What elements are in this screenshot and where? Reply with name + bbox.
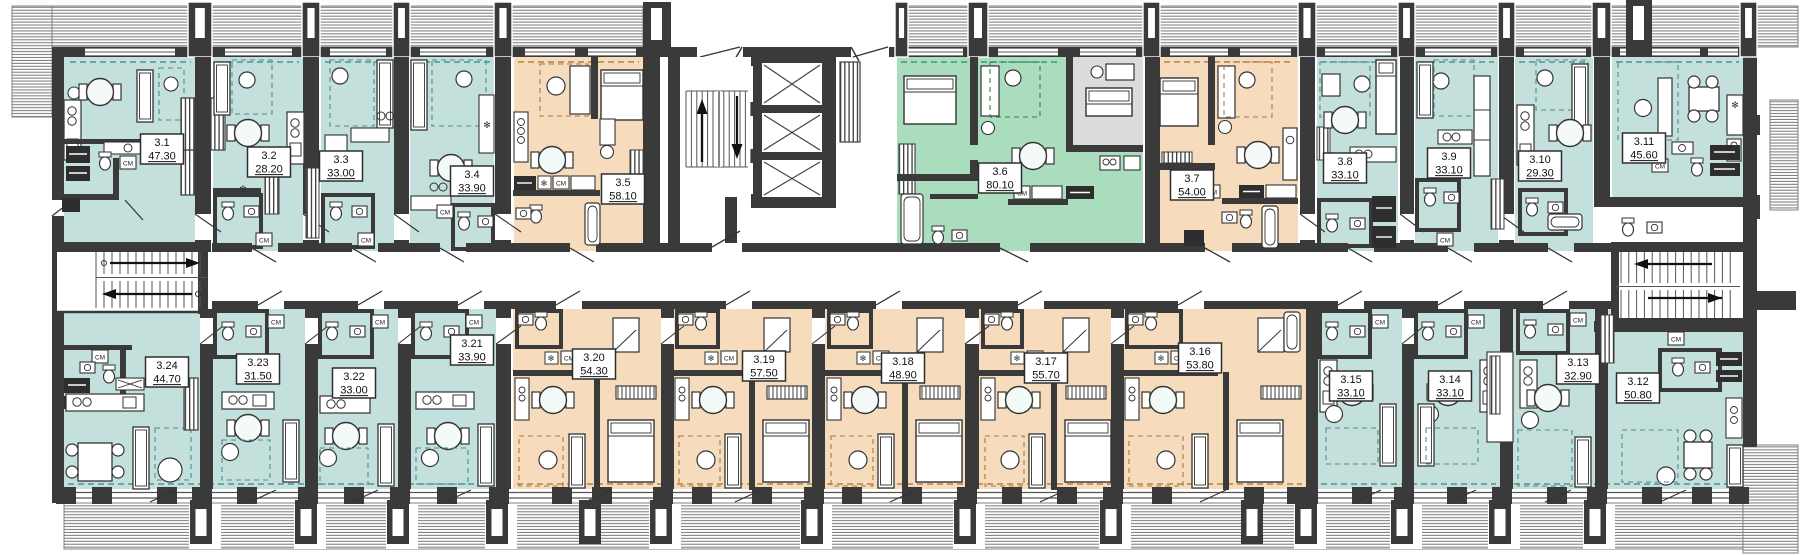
- svg-text:48.90: 48.90: [889, 370, 917, 382]
- svg-text:50.80: 50.80: [1624, 390, 1652, 402]
- svg-text:CM: CM: [95, 355, 105, 362]
- svg-text:CM: CM: [271, 320, 281, 327]
- svg-text:3.1: 3.1: [154, 137, 169, 149]
- svg-text:32.90: 32.90: [1564, 371, 1592, 383]
- svg-text:3.15: 3.15: [1340, 374, 1361, 386]
- svg-text:3.7: 3.7: [1184, 173, 1199, 185]
- svg-text:CM: CM: [1655, 164, 1665, 171]
- svg-text:54.00: 54.00: [1178, 187, 1206, 199]
- svg-text:✻: ✻: [860, 354, 867, 363]
- svg-text:33.10: 33.10: [1331, 170, 1359, 182]
- svg-text:3.6: 3.6: [992, 166, 1007, 178]
- svg-text:3.17: 3.17: [1035, 356, 1056, 368]
- svg-text:54.30: 54.30: [580, 366, 608, 378]
- svg-text:33.90: 33.90: [458, 183, 486, 195]
- svg-text:3.16: 3.16: [1189, 346, 1210, 358]
- svg-text:3.14: 3.14: [1439, 374, 1460, 386]
- svg-text:28.20: 28.20: [255, 164, 283, 176]
- svg-text:CM: CM: [724, 356, 734, 363]
- svg-text:3.4: 3.4: [464, 169, 479, 181]
- svg-text:44.70: 44.70: [153, 374, 181, 386]
- svg-text:33.90: 33.90: [458, 352, 486, 364]
- svg-text:33.00: 33.00: [327, 168, 355, 180]
- svg-text:3.22: 3.22: [343, 371, 364, 383]
- svg-text:45.60: 45.60: [1630, 150, 1658, 162]
- svg-text:CM: CM: [1440, 238, 1450, 245]
- svg-text:3.23: 3.23: [247, 357, 268, 369]
- svg-text:3.3: 3.3: [333, 154, 348, 166]
- svg-text:3.19: 3.19: [753, 354, 774, 366]
- svg-text:53.80: 53.80: [1186, 360, 1214, 372]
- svg-text:3.10: 3.10: [1529, 154, 1550, 166]
- svg-text:CM: CM: [469, 320, 479, 327]
- svg-text:CM: CM: [440, 210, 450, 217]
- svg-text:3.8: 3.8: [1337, 156, 1352, 168]
- svg-text:CM: CM: [123, 161, 133, 168]
- svg-text:CM: CM: [1375, 320, 1385, 327]
- svg-text:✻: ✻: [548, 354, 555, 363]
- svg-text:CM: CM: [556, 181, 566, 188]
- svg-text:✻: ✻: [1158, 354, 1165, 363]
- svg-text:CM: CM: [375, 320, 385, 327]
- svg-text:✻: ✻: [1731, 100, 1739, 110]
- svg-text:57.50: 57.50: [750, 368, 778, 380]
- svg-text:3.12: 3.12: [1627, 376, 1648, 388]
- svg-text:✻: ✻: [541, 179, 548, 188]
- svg-text:3.5: 3.5: [615, 177, 630, 189]
- svg-text:33.10: 33.10: [1436, 388, 1464, 400]
- svg-text:✻: ✻: [239, 184, 247, 194]
- svg-text:33.10: 33.10: [1337, 388, 1365, 400]
- svg-text:CM: CM: [361, 238, 371, 245]
- svg-text:✻: ✻: [1014, 354, 1021, 363]
- svg-text:55.70: 55.70: [1032, 370, 1060, 382]
- svg-text:3.2: 3.2: [261, 150, 276, 162]
- svg-text:80.10: 80.10: [986, 180, 1014, 192]
- svg-text:CM: CM: [259, 238, 269, 245]
- svg-text:3.18: 3.18: [892, 356, 913, 368]
- svg-text:33.00: 33.00: [340, 385, 368, 397]
- svg-text:CM: CM: [1471, 320, 1481, 327]
- svg-text:33.10: 33.10: [1435, 165, 1463, 177]
- svg-text:58.10: 58.10: [609, 191, 637, 203]
- svg-text:✻: ✻: [483, 120, 491, 130]
- svg-text:3.11: 3.11: [1634, 136, 1655, 148]
- svg-text:47.30: 47.30: [148, 151, 176, 163]
- svg-text:3.24: 3.24: [156, 360, 177, 372]
- svg-text:29.30: 29.30: [1526, 168, 1554, 180]
- svg-text:3.9: 3.9: [1441, 151, 1456, 163]
- svg-text:3.21: 3.21: [461, 338, 482, 350]
- svg-text:3.20: 3.20: [583, 352, 604, 364]
- svg-text:31.50: 31.50: [244, 371, 272, 383]
- svg-text:3.13: 3.13: [1567, 357, 1588, 369]
- svg-text:✻: ✻: [708, 354, 715, 363]
- svg-text:CM: CM: [1573, 318, 1583, 325]
- svg-text:CM: CM: [1671, 337, 1681, 344]
